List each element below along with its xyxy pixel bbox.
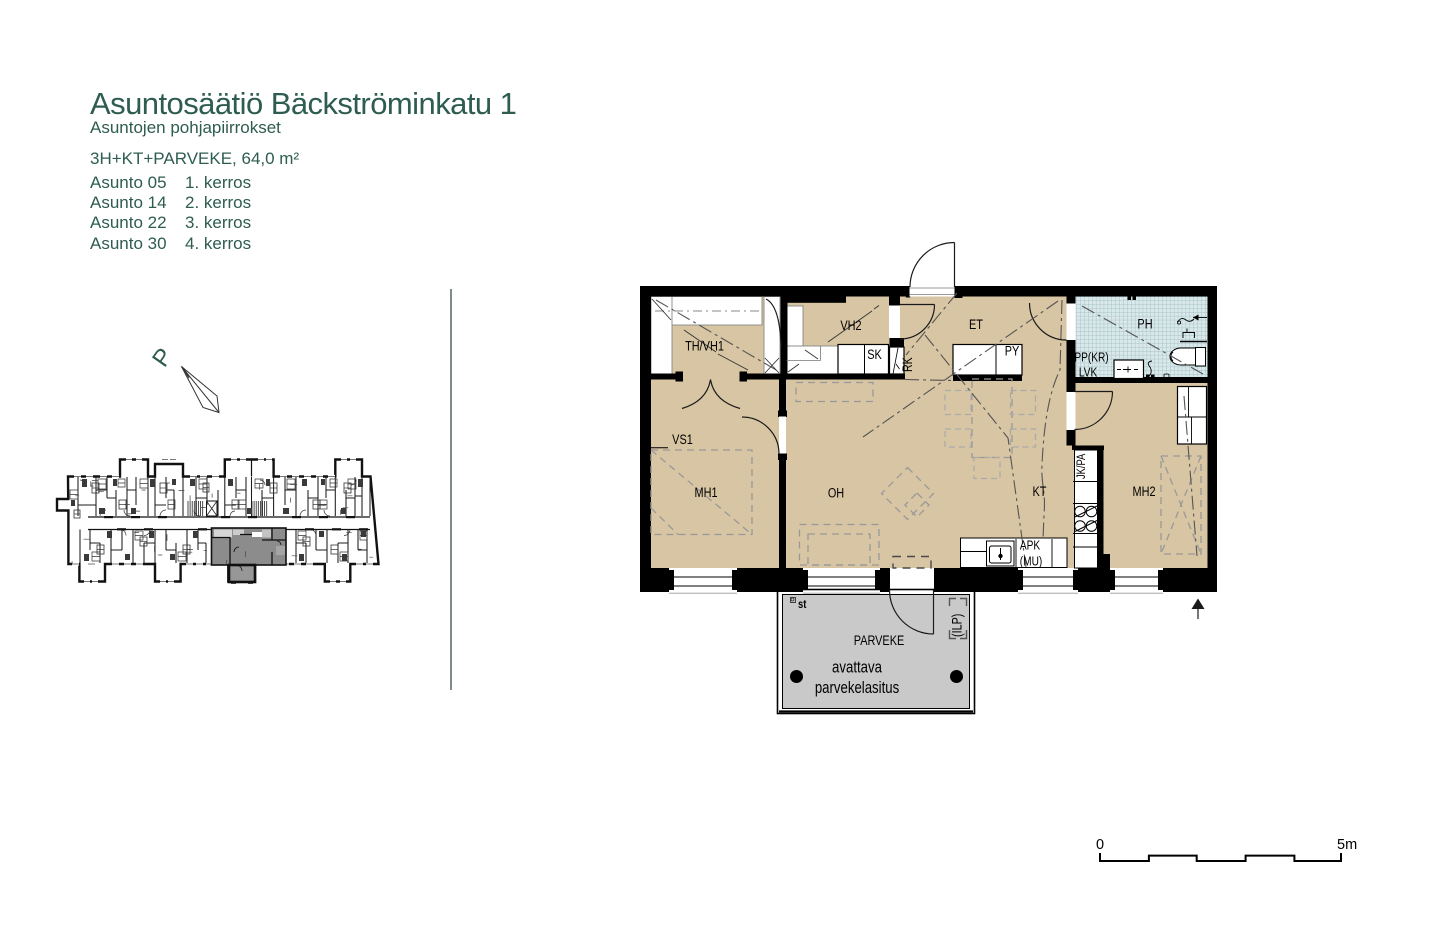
svg-text:st: st	[798, 598, 807, 611]
svg-text:parvekelasitus: parvekelasitus	[815, 679, 899, 698]
svg-text:5m: 5m	[1337, 837, 1357, 853]
svg-text:VS1: VS1	[672, 432, 693, 448]
svg-text:(ILP): (ILP)	[949, 614, 964, 637]
svg-text:0: 0	[1096, 837, 1104, 853]
svg-text:PARVEKE: PARVEKE	[854, 633, 905, 649]
svg-text:PP(KR): PP(KR)	[1074, 350, 1108, 364]
svg-text:JK/PA: JK/PA	[1075, 453, 1088, 479]
svg-text:VH2: VH2	[840, 318, 861, 334]
svg-text:P: P	[147, 343, 178, 372]
svg-text:PH: PH	[1137, 316, 1152, 332]
svg-text:LVK: LVK	[1079, 365, 1098, 379]
svg-text:RK: RK	[900, 357, 916, 372]
svg-text:KT: KT	[1033, 484, 1047, 500]
svg-text:TH/VH1: TH/VH1	[685, 338, 724, 354]
svg-text:(MU): (MU)	[1020, 554, 1043, 568]
svg-text:MH2: MH2	[1132, 484, 1155, 500]
svg-text:MH1: MH1	[694, 485, 717, 501]
svg-text:PY: PY	[1005, 343, 1020, 359]
svg-text:avattava: avattava	[832, 658, 882, 677]
svg-text:APK: APK	[1020, 538, 1040, 552]
svg-text:SK: SK	[867, 347, 882, 363]
svg-text:ET: ET	[969, 317, 983, 333]
svg-text:OH: OH	[828, 485, 844, 501]
